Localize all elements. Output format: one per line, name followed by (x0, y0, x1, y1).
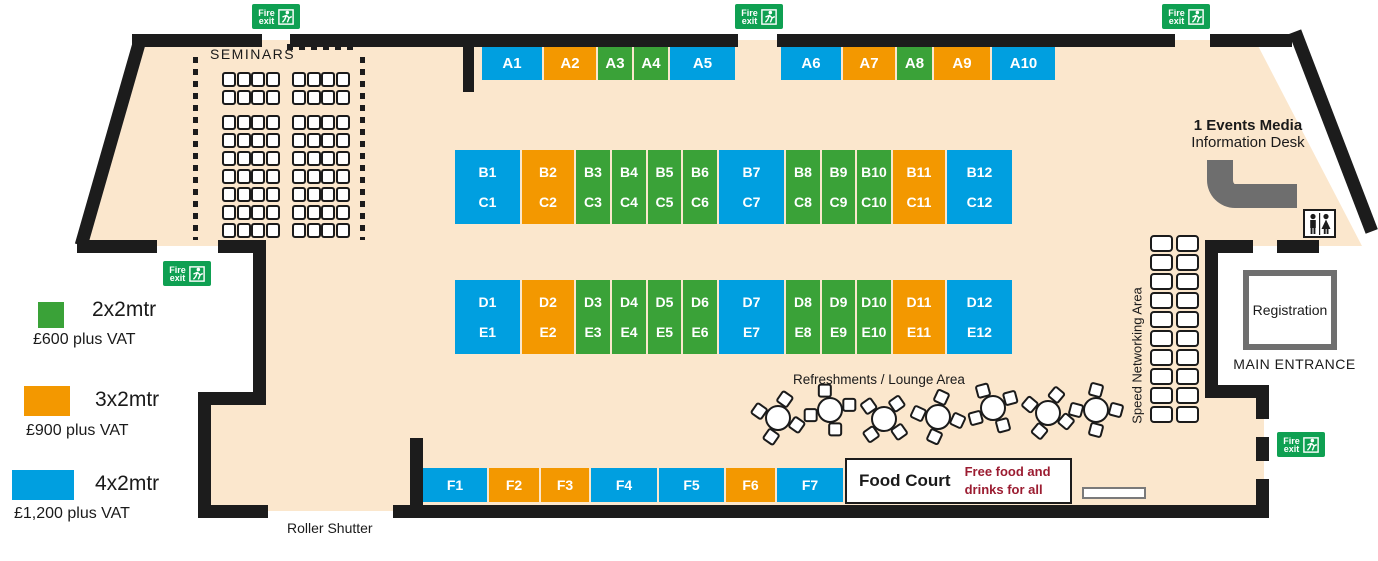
networking-chair (1150, 254, 1173, 271)
seminar-chair (321, 187, 335, 202)
stand-label-A8: A8 (905, 56, 924, 71)
legend-price-2x2: £600 plus VAT (33, 331, 136, 349)
lounge-table (871, 406, 897, 432)
seminar-chair (307, 133, 321, 148)
running-man-icon (189, 266, 205, 282)
stand-label-A7: A7 (859, 56, 878, 71)
seminar-chair (237, 90, 251, 105)
seminar-chair (222, 133, 236, 148)
seminar-chair (336, 187, 350, 202)
stand-A5[interactable]: A5 (670, 47, 735, 80)
stand-label-C9: C9 (830, 195, 848, 209)
stand-F7[interactable]: F7 (777, 468, 843, 502)
stand-label-E12: E12 (967, 325, 992, 339)
seminar-chair (336, 90, 350, 105)
stand-B12[interactable]: B12C12 (947, 150, 1012, 224)
lounge-chair (828, 422, 842, 436)
stand-label-D5: D5 (656, 295, 674, 309)
lounge-table (1083, 397, 1109, 423)
wall-right-low-c (1256, 479, 1269, 517)
stand-label-E1: E1 (479, 325, 496, 339)
stand-D2[interactable]: D2E2 (522, 280, 574, 354)
wall-registration-vertical (1205, 240, 1218, 398)
running-man-icon (278, 9, 294, 25)
stand-label-E11: E11 (907, 325, 931, 339)
stand-label-B1: B1 (479, 165, 497, 179)
seminar-chair (307, 205, 321, 220)
stand-A1[interactable]: A1 (482, 47, 542, 80)
running-man-icon (1303, 437, 1319, 453)
networking-chair (1150, 387, 1173, 404)
seminar-chair (237, 151, 251, 166)
stand-label-A6: A6 (801, 56, 820, 71)
seminar-chair (222, 205, 236, 220)
stand-F3[interactable]: F3 (541, 468, 589, 502)
stand-label-E10: E10 (862, 325, 887, 339)
fire-exit-sign-1: Fireexit (252, 4, 300, 29)
wall-stub-a1 (463, 40, 474, 92)
wall-left-vertical-1 (253, 240, 266, 404)
seminar-chair (222, 187, 236, 202)
stand-A6[interactable]: A6 (781, 47, 841, 80)
stand-label-D1: D1 (479, 295, 497, 309)
stand-B3[interactable]: B3C3 (576, 150, 610, 224)
speed-networking-label: Speed Networking Area (1130, 256, 1145, 456)
stand-label-C10: C10 (861, 195, 887, 209)
seminar-chair (251, 169, 265, 184)
seminar-chair (336, 169, 350, 184)
stand-F6[interactable]: F6 (726, 468, 775, 502)
stand-label-D4: D4 (620, 295, 638, 309)
seminar-chair (307, 90, 321, 105)
stand-label-E2: E2 (539, 325, 556, 339)
networking-chair (1176, 406, 1199, 423)
food-court-note-line1: Free food and (965, 463, 1051, 481)
stand-B8[interactable]: B8C8 (786, 150, 820, 224)
lounge-table (925, 404, 951, 430)
lounge-table (980, 395, 1006, 421)
stand-label-C5: C5 (656, 195, 674, 209)
wall-left-mid-a (77, 240, 157, 253)
stand-label-C2: C2 (539, 195, 557, 209)
seminar-chair (292, 133, 306, 148)
networking-chair (1176, 235, 1199, 252)
stand-label-C1: C1 (479, 195, 497, 209)
seminar-chair (251, 133, 265, 148)
stand-label-D10: D10 (861, 295, 887, 309)
seminar-chair (336, 205, 350, 220)
stand-label-D3: D3 (584, 295, 602, 309)
seminar-chair (251, 205, 265, 220)
seminar-chair (336, 223, 350, 238)
stand-D4[interactable]: D4E4 (612, 280, 646, 354)
stand-label-D2: D2 (539, 295, 557, 309)
stand-label-E8: E8 (794, 325, 811, 339)
seminar-chair (266, 205, 280, 220)
networking-chair (1176, 368, 1199, 385)
wall-bottom-a (198, 505, 268, 518)
lounge-table (765, 405, 791, 431)
stand-B7[interactable]: B7C7 (719, 150, 784, 224)
seminar-chair (307, 169, 321, 184)
stand-label-B10: B10 (861, 165, 887, 179)
stand-label-A10: A10 (1010, 56, 1038, 71)
seminar-chair (222, 223, 236, 238)
running-man-icon (761, 9, 777, 25)
stand-label-F7: F7 (802, 478, 818, 492)
stand-D11[interactable]: D11E11 (893, 280, 945, 354)
seminar-chair (266, 72, 280, 87)
stand-D1[interactable]: D1E1 (455, 280, 520, 354)
main-entrance-label: MAIN ENTRANCE (1212, 356, 1377, 372)
food-court-box: Food Court Free food and drinks for all (845, 458, 1072, 504)
seminar-chair (251, 187, 265, 202)
networking-chair (1150, 311, 1173, 328)
stand-label-C3: C3 (584, 195, 602, 209)
stand-label-B2: B2 (539, 165, 557, 179)
stand-label-E5: E5 (656, 325, 673, 339)
stand-label-F3: F3 (557, 478, 573, 492)
seminar-chair (266, 169, 280, 184)
legend-price-4x2: £1,200 plus VAT (14, 505, 130, 523)
stand-label-A4: A4 (641, 56, 660, 71)
info-desk-line2: Information Desk (1163, 134, 1333, 151)
stand-label-B4: B4 (620, 165, 638, 179)
stand-D12[interactable]: D12E12 (947, 280, 1012, 354)
lounge-chair (842, 398, 856, 412)
stand-A10[interactable]: A10 (992, 47, 1055, 80)
seminar-chair (321, 133, 335, 148)
seminars-label: SEMINARS (210, 46, 295, 62)
stand-label-F4: F4 (616, 478, 632, 492)
seminar-chair (222, 169, 236, 184)
seminar-chair (266, 223, 280, 238)
toilets-icon (1303, 209, 1336, 238)
seminars-dashed-right (360, 57, 365, 240)
wall-bottom-b (393, 505, 1269, 518)
stand-label-C12: C12 (967, 195, 993, 209)
stand-label-B7: B7 (743, 165, 761, 179)
fire-exit-sign-4: Fireexit (163, 261, 211, 286)
stand-label-B3: B3 (584, 165, 602, 179)
seminar-chair (292, 72, 306, 87)
stand-label-F1: F1 (447, 478, 463, 492)
seminar-chair (321, 169, 335, 184)
seminar-chair (251, 115, 265, 130)
lounge-chair (818, 384, 832, 398)
stand-A2[interactable]: A2 (544, 47, 596, 80)
lounge-table (1035, 400, 1061, 426)
roller-shutter-label: Roller Shutter (287, 520, 373, 536)
stand-F1[interactable]: F1 (423, 468, 487, 502)
wall-top-c (777, 34, 1175, 47)
legend-price-3x2: £900 plus VAT (26, 422, 129, 440)
stand-label-B5: B5 (656, 165, 674, 179)
wall-right-low-b (1256, 437, 1269, 461)
stand-A3[interactable]: A3 (598, 47, 632, 80)
stand-D3[interactable]: D3E3 (576, 280, 610, 354)
seminar-chair (321, 90, 335, 105)
networking-chair (1176, 292, 1199, 309)
seminar-chair (237, 115, 251, 130)
stand-D7[interactable]: D7E7 (719, 280, 784, 354)
stand-label-F2: F2 (506, 478, 522, 492)
stand-label-A3: A3 (605, 56, 624, 71)
stand-D8[interactable]: D8E8 (786, 280, 820, 354)
seminar-chair (222, 151, 236, 166)
seminar-chair (336, 72, 350, 87)
fire-exit-text: Fireexit (1168, 9, 1185, 25)
seminar-chair (292, 90, 306, 105)
legend-label-4x2: 4x2mtr (95, 472, 159, 496)
stand-B1[interactable]: B1C1 (455, 150, 520, 224)
seminar-chair (266, 133, 280, 148)
legend-swatch-2x2 (38, 302, 64, 328)
stand-label-D11: D11 (907, 295, 932, 309)
stand-F2[interactable]: F2 (489, 468, 539, 502)
seminar-chair (307, 151, 321, 166)
networking-chair (1176, 387, 1199, 404)
seminar-chair (292, 223, 306, 238)
seminar-chair (237, 187, 251, 202)
seminars-dashed-top (287, 44, 355, 50)
seminar-chair (321, 115, 335, 130)
stand-label-C11: C11 (907, 195, 932, 209)
stand-label-C4: C4 (620, 195, 638, 209)
stand-F5[interactable]: F5 (659, 468, 724, 502)
stand-label-B11: B11 (907, 165, 932, 179)
seminar-chair (307, 223, 321, 238)
seminar-chair (266, 187, 280, 202)
stand-D10[interactable]: D10E10 (857, 280, 891, 354)
lounge-chair (804, 408, 818, 422)
networking-chair (1150, 235, 1173, 252)
stand-label-E9: E9 (830, 325, 847, 339)
wall-left-vertical-2 (198, 392, 211, 517)
side-table (1082, 487, 1146, 499)
stand-B5[interactable]: B5C5 (648, 150, 681, 224)
stand-B2[interactable]: B2C2 (522, 150, 574, 224)
seminar-chair (336, 151, 350, 166)
networking-chair (1150, 330, 1173, 347)
stand-label-A1: A1 (502, 56, 521, 71)
stand-A8[interactable]: A8 (897, 47, 932, 80)
fire-exit-sign-2: Fireexit (735, 4, 783, 29)
stand-F4[interactable]: F4 (591, 468, 657, 502)
seminar-chair (321, 205, 335, 220)
seminar-chair (251, 223, 265, 238)
food-court-title: Food Court (859, 471, 951, 491)
floor-plan: SEMINARS Speed Networking Area Refreshme… (0, 0, 1378, 561)
legend-swatch-4x2 (12, 470, 74, 500)
networking-chair (1176, 254, 1199, 271)
registration-box: Registration (1243, 270, 1337, 350)
seminar-chair (307, 72, 321, 87)
networking-chair (1150, 368, 1173, 385)
stand-label-B6: B6 (691, 165, 709, 179)
fire-exit-text: Fireexit (169, 266, 186, 282)
fire-exit-sign-3: Fireexit (1162, 4, 1210, 29)
wall-top-b (290, 34, 738, 47)
information-desk (1207, 160, 1297, 208)
fire-exit-text: Fireexit (741, 9, 758, 25)
registration-label: Registration (1253, 302, 1328, 318)
seminar-chair (237, 205, 251, 220)
stand-label-E6: E6 (691, 325, 708, 339)
seminar-chair (237, 72, 251, 87)
networking-chair (1150, 292, 1173, 309)
seminar-chair (336, 133, 350, 148)
seminar-chair (292, 187, 306, 202)
legend-swatch-3x2 (24, 386, 70, 416)
running-man-icon (1188, 9, 1204, 25)
stand-D9[interactable]: D9E9 (822, 280, 855, 354)
networking-chair (1176, 311, 1199, 328)
wall-stub-f-row (410, 438, 423, 508)
seminar-chair (237, 223, 251, 238)
food-court-note-line2: drinks for all (965, 481, 1051, 499)
stand-label-D7: D7 (743, 295, 761, 309)
seminar-chair (266, 151, 280, 166)
networking-chair (1150, 349, 1173, 366)
seminar-chair (266, 90, 280, 105)
stand-label-D9: D9 (830, 295, 848, 309)
seminar-chair (307, 115, 321, 130)
networking-chair (1176, 330, 1199, 347)
stand-label-F6: F6 (742, 478, 758, 492)
legend-label-3x2: 3x2mtr (95, 388, 159, 412)
networking-chair (1176, 273, 1199, 290)
stand-D6[interactable]: D6E6 (683, 280, 717, 354)
info-desk-line1: 1 Events Media (1163, 117, 1333, 134)
seminars-dashed-left (193, 57, 198, 240)
stand-label-E4: E4 (620, 325, 637, 339)
seminar-chair (222, 90, 236, 105)
wall-right-mid-a (1205, 240, 1253, 253)
stand-B9[interactable]: B9C9 (822, 150, 855, 224)
seminar-chair (292, 151, 306, 166)
stand-label-A2: A2 (560, 56, 579, 71)
networking-chair (1176, 349, 1199, 366)
fire-exit-text: Fireexit (258, 9, 275, 25)
stand-label-B12: B12 (967, 165, 993, 179)
stand-label-C8: C8 (794, 195, 812, 209)
stand-label-B9: B9 (830, 165, 848, 179)
seminar-chair (321, 72, 335, 87)
seminar-chair (222, 72, 236, 87)
seminar-chair (222, 115, 236, 130)
stand-label-F5: F5 (683, 478, 699, 492)
seminar-chair (237, 169, 251, 184)
stand-B11[interactable]: B11C11 (893, 150, 945, 224)
stand-label-E7: E7 (743, 325, 760, 339)
stand-label-A5: A5 (693, 56, 712, 71)
fire-exit-sign-5: Fireexit (1277, 432, 1325, 457)
legend-label-2x2: 2x2mtr (92, 298, 156, 322)
stand-label-C6: C6 (691, 195, 709, 209)
stand-B6[interactable]: B6C6 (683, 150, 717, 224)
stand-A9[interactable]: A9 (934, 47, 990, 80)
seminar-chair (251, 151, 265, 166)
seminar-chair (307, 187, 321, 202)
stand-B10[interactable]: B10C10 (857, 150, 891, 224)
seminar-chair (251, 90, 265, 105)
seminar-chair (292, 169, 306, 184)
seminar-chair (251, 72, 265, 87)
wall-top-d (1210, 34, 1292, 47)
stand-D5[interactable]: D5E5 (648, 280, 681, 354)
stand-B4[interactable]: B4C4 (612, 150, 646, 224)
networking-chair (1150, 406, 1173, 423)
stand-label-A9: A9 (952, 56, 971, 71)
stand-label-D12: D12 (967, 295, 993, 309)
stand-A4[interactable]: A4 (634, 47, 668, 80)
networking-chair (1150, 273, 1173, 290)
seminar-chair (321, 151, 335, 166)
lounge-table (817, 397, 843, 423)
stand-label-C7: C7 (743, 195, 761, 209)
wall-right-mid-b (1277, 240, 1319, 253)
seminar-chair (266, 115, 280, 130)
stand-label-E3: E3 (584, 325, 601, 339)
seminar-chair (321, 223, 335, 238)
seminar-chair (237, 133, 251, 148)
stand-A7[interactable]: A7 (843, 47, 895, 80)
seminar-chair (292, 205, 306, 220)
seminar-chair (292, 115, 306, 130)
seminar-chair (336, 115, 350, 130)
fire-exit-text: Fireexit (1283, 437, 1300, 453)
stand-label-D6: D6 (691, 295, 709, 309)
stand-label-B8: B8 (794, 165, 812, 179)
stand-label-D8: D8 (794, 295, 812, 309)
